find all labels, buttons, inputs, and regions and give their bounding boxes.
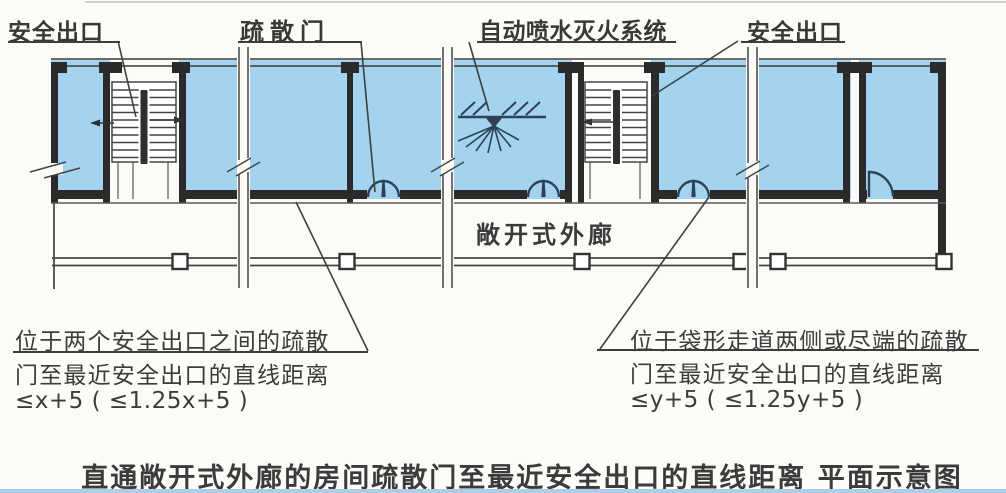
stair-handrail <box>612 89 621 165</box>
stairwell-right <box>582 82 647 199</box>
railing-posts <box>173 254 952 269</box>
note-left-formula: ≤x+5 ( ≤1.25x+5 ) <box>15 388 248 414</box>
bottom-wall <box>179 190 367 199</box>
wall <box>51 62 58 203</box>
wall <box>103 62 110 203</box>
wall <box>347 62 353 203</box>
note-right-underline <box>597 349 979 351</box>
bottom-wall <box>710 190 850 199</box>
room <box>179 60 353 199</box>
stair-lower-lines <box>590 162 640 199</box>
wall <box>859 62 866 203</box>
label-corridor: 敞开式外廊 <box>476 215 616 250</box>
note-left-line2: 门至最近安全出口的直线距离 <box>15 356 330 390</box>
scan-artifact-bottom <box>0 489 1006 493</box>
room <box>859 60 946 199</box>
label-underline <box>741 41 845 43</box>
wall <box>179 62 186 203</box>
label-underline <box>8 41 120 43</box>
note-right-line2: 门至最近安全出口的直线距离 <box>630 355 945 389</box>
bottom-wall <box>893 190 946 199</box>
room <box>51 60 110 199</box>
balcony-railing <box>52 254 952 269</box>
wall <box>578 62 584 203</box>
label-underline <box>238 41 362 43</box>
stair-handrail <box>140 89 149 165</box>
bottom-wall <box>560 190 572 199</box>
bottom-wall <box>859 190 867 199</box>
bottom-wall <box>51 190 110 199</box>
fire-safety-plan-diagram: 安全出口 疏散门 自动喷水灭火系统 安全出口 敞开式外廊 位于两个安全出口之间的… <box>0 0 1006 493</box>
room <box>347 60 572 199</box>
wall <box>565 62 572 203</box>
note-right-formula: ≤y+5 ( ≤1.25y+5 ) <box>630 387 863 413</box>
bottom-wall <box>651 190 677 199</box>
note-left-underline <box>13 351 368 353</box>
wall <box>651 62 659 203</box>
label-underline <box>477 41 676 43</box>
stair-lower-lines <box>118 162 168 199</box>
figure-caption: 直通敞开式外廊的房间疏散门至最近安全出口的直线距离 平面示意图 <box>38 456 1006 493</box>
bottom-wall <box>400 190 527 199</box>
wall <box>843 62 850 203</box>
wall-right-outer <box>938 62 946 254</box>
